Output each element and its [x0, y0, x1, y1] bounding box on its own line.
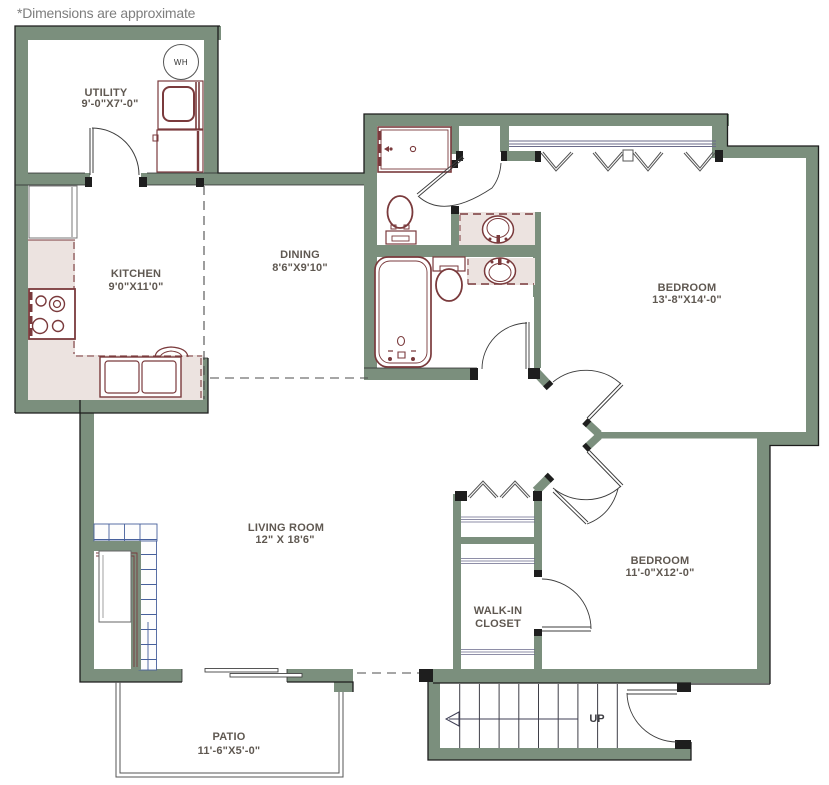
svg-text:KITCHEN: KITCHEN: [111, 268, 161, 280]
svg-text:WH: WH: [174, 58, 188, 67]
svg-text:CLOSET: CLOSET: [475, 618, 521, 630]
svg-text:BEDROOM: BEDROOM: [658, 282, 717, 294]
svg-text:DINING: DINING: [280, 249, 320, 261]
svg-text:PATIO: PATIO: [213, 731, 246, 743]
svg-text:9'-0"X7'-0": 9'-0"X7'-0": [82, 98, 139, 110]
svg-text:*Dimensions are approximate: *Dimensions are approximate: [17, 5, 196, 21]
svg-text:BEDROOM: BEDROOM: [631, 555, 690, 567]
svg-text:UP: UP: [589, 713, 604, 725]
svg-text:13'-8"X14'-0": 13'-8"X14'-0": [652, 294, 722, 306]
svg-text:LIVING ROOM: LIVING ROOM: [248, 522, 324, 534]
svg-text:WALK-IN: WALK-IN: [474, 605, 522, 617]
svg-text:11'-0"X12'-0": 11'-0"X12'-0": [625, 567, 694, 579]
svg-text:8'6"X9'10": 8'6"X9'10": [272, 262, 328, 274]
svg-text:12" X 18'6": 12" X 18'6": [255, 534, 314, 546]
svg-text:9'0"X11'0": 9'0"X11'0": [109, 281, 164, 293]
svg-text:11'-6"X5'-0": 11'-6"X5'-0": [198, 745, 261, 757]
